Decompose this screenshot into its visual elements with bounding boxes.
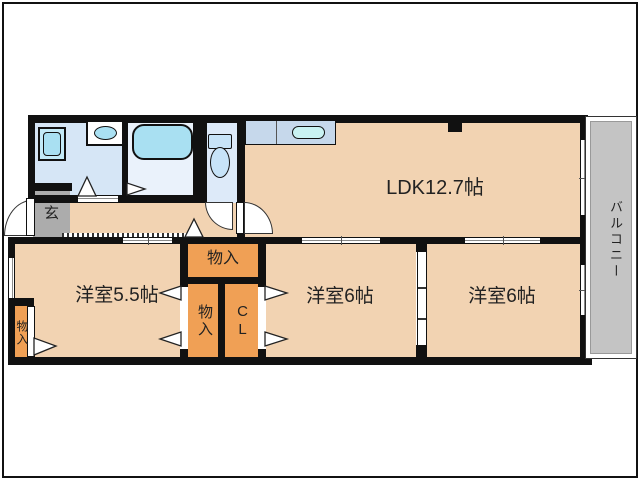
bedroom-left-label: 洋室5.5帖 <box>52 286 182 306</box>
closet-label: CL <box>233 290 250 352</box>
balcony-label: バルコニー <box>600 192 622 287</box>
wall-hall-south-2 <box>172 237 302 244</box>
bathtub <box>132 124 193 160</box>
washing-machine <box>38 127 66 161</box>
closet-door-triangle-2 <box>264 331 289 348</box>
bathroom-door-triangle <box>126 181 147 197</box>
toilet-bowl <box>210 147 230 178</box>
sliding-door-bedroom-left <box>123 237 172 244</box>
ldk-label: LDK12.7帖 <box>340 178 530 199</box>
hall-storage-door-triangle <box>184 218 205 238</box>
storage-mid-door-triangle-2 <box>158 331 183 348</box>
storage-mid-label: 物入 <box>194 288 212 354</box>
ldk-door-leaf <box>236 202 244 234</box>
wall-storage-left-top <box>8 298 34 306</box>
wall-storage-mid-h <box>180 277 266 284</box>
sliding-door-bedroom-right <box>465 237 540 244</box>
genkan-step-edge <box>62 233 192 237</box>
room-partition-sliding <box>417 252 427 345</box>
kitchen-counter <box>245 120 336 145</box>
wall-partition-stub-top <box>416 237 427 252</box>
genkan-label: 玄 <box>33 206 70 222</box>
storage-left-label: 物入 <box>15 310 28 355</box>
wall-partition-stub-bottom <box>416 345 427 357</box>
floorplan: LDK12.7帖 洋室5.5帖 洋室6帖 洋室6帖 物入 物入 CL 物入 玄 … <box>0 0 640 480</box>
wall-bottom <box>8 357 592 365</box>
storage-left-door-triangle <box>33 336 58 357</box>
wall-top-stub <box>448 123 462 132</box>
wall-hall-south-1 <box>8 237 123 244</box>
wall-hall-south-4 <box>540 237 580 244</box>
bedroom-mid-label: 洋室6帖 <box>268 287 412 307</box>
bedroom-right-label: 洋室6帖 <box>430 287 574 307</box>
wall-toilet-west <box>193 115 207 203</box>
storage-hall-label: 物入 <box>188 251 258 268</box>
wall-storage-mid-v <box>218 284 225 357</box>
sliding-door-bedroom-mid <box>302 237 380 244</box>
washroom-door-triangle <box>76 176 98 197</box>
vanity-sink <box>86 120 124 146</box>
wall-genkan-top <box>28 183 72 191</box>
window-left-bedroom <box>8 258 15 298</box>
